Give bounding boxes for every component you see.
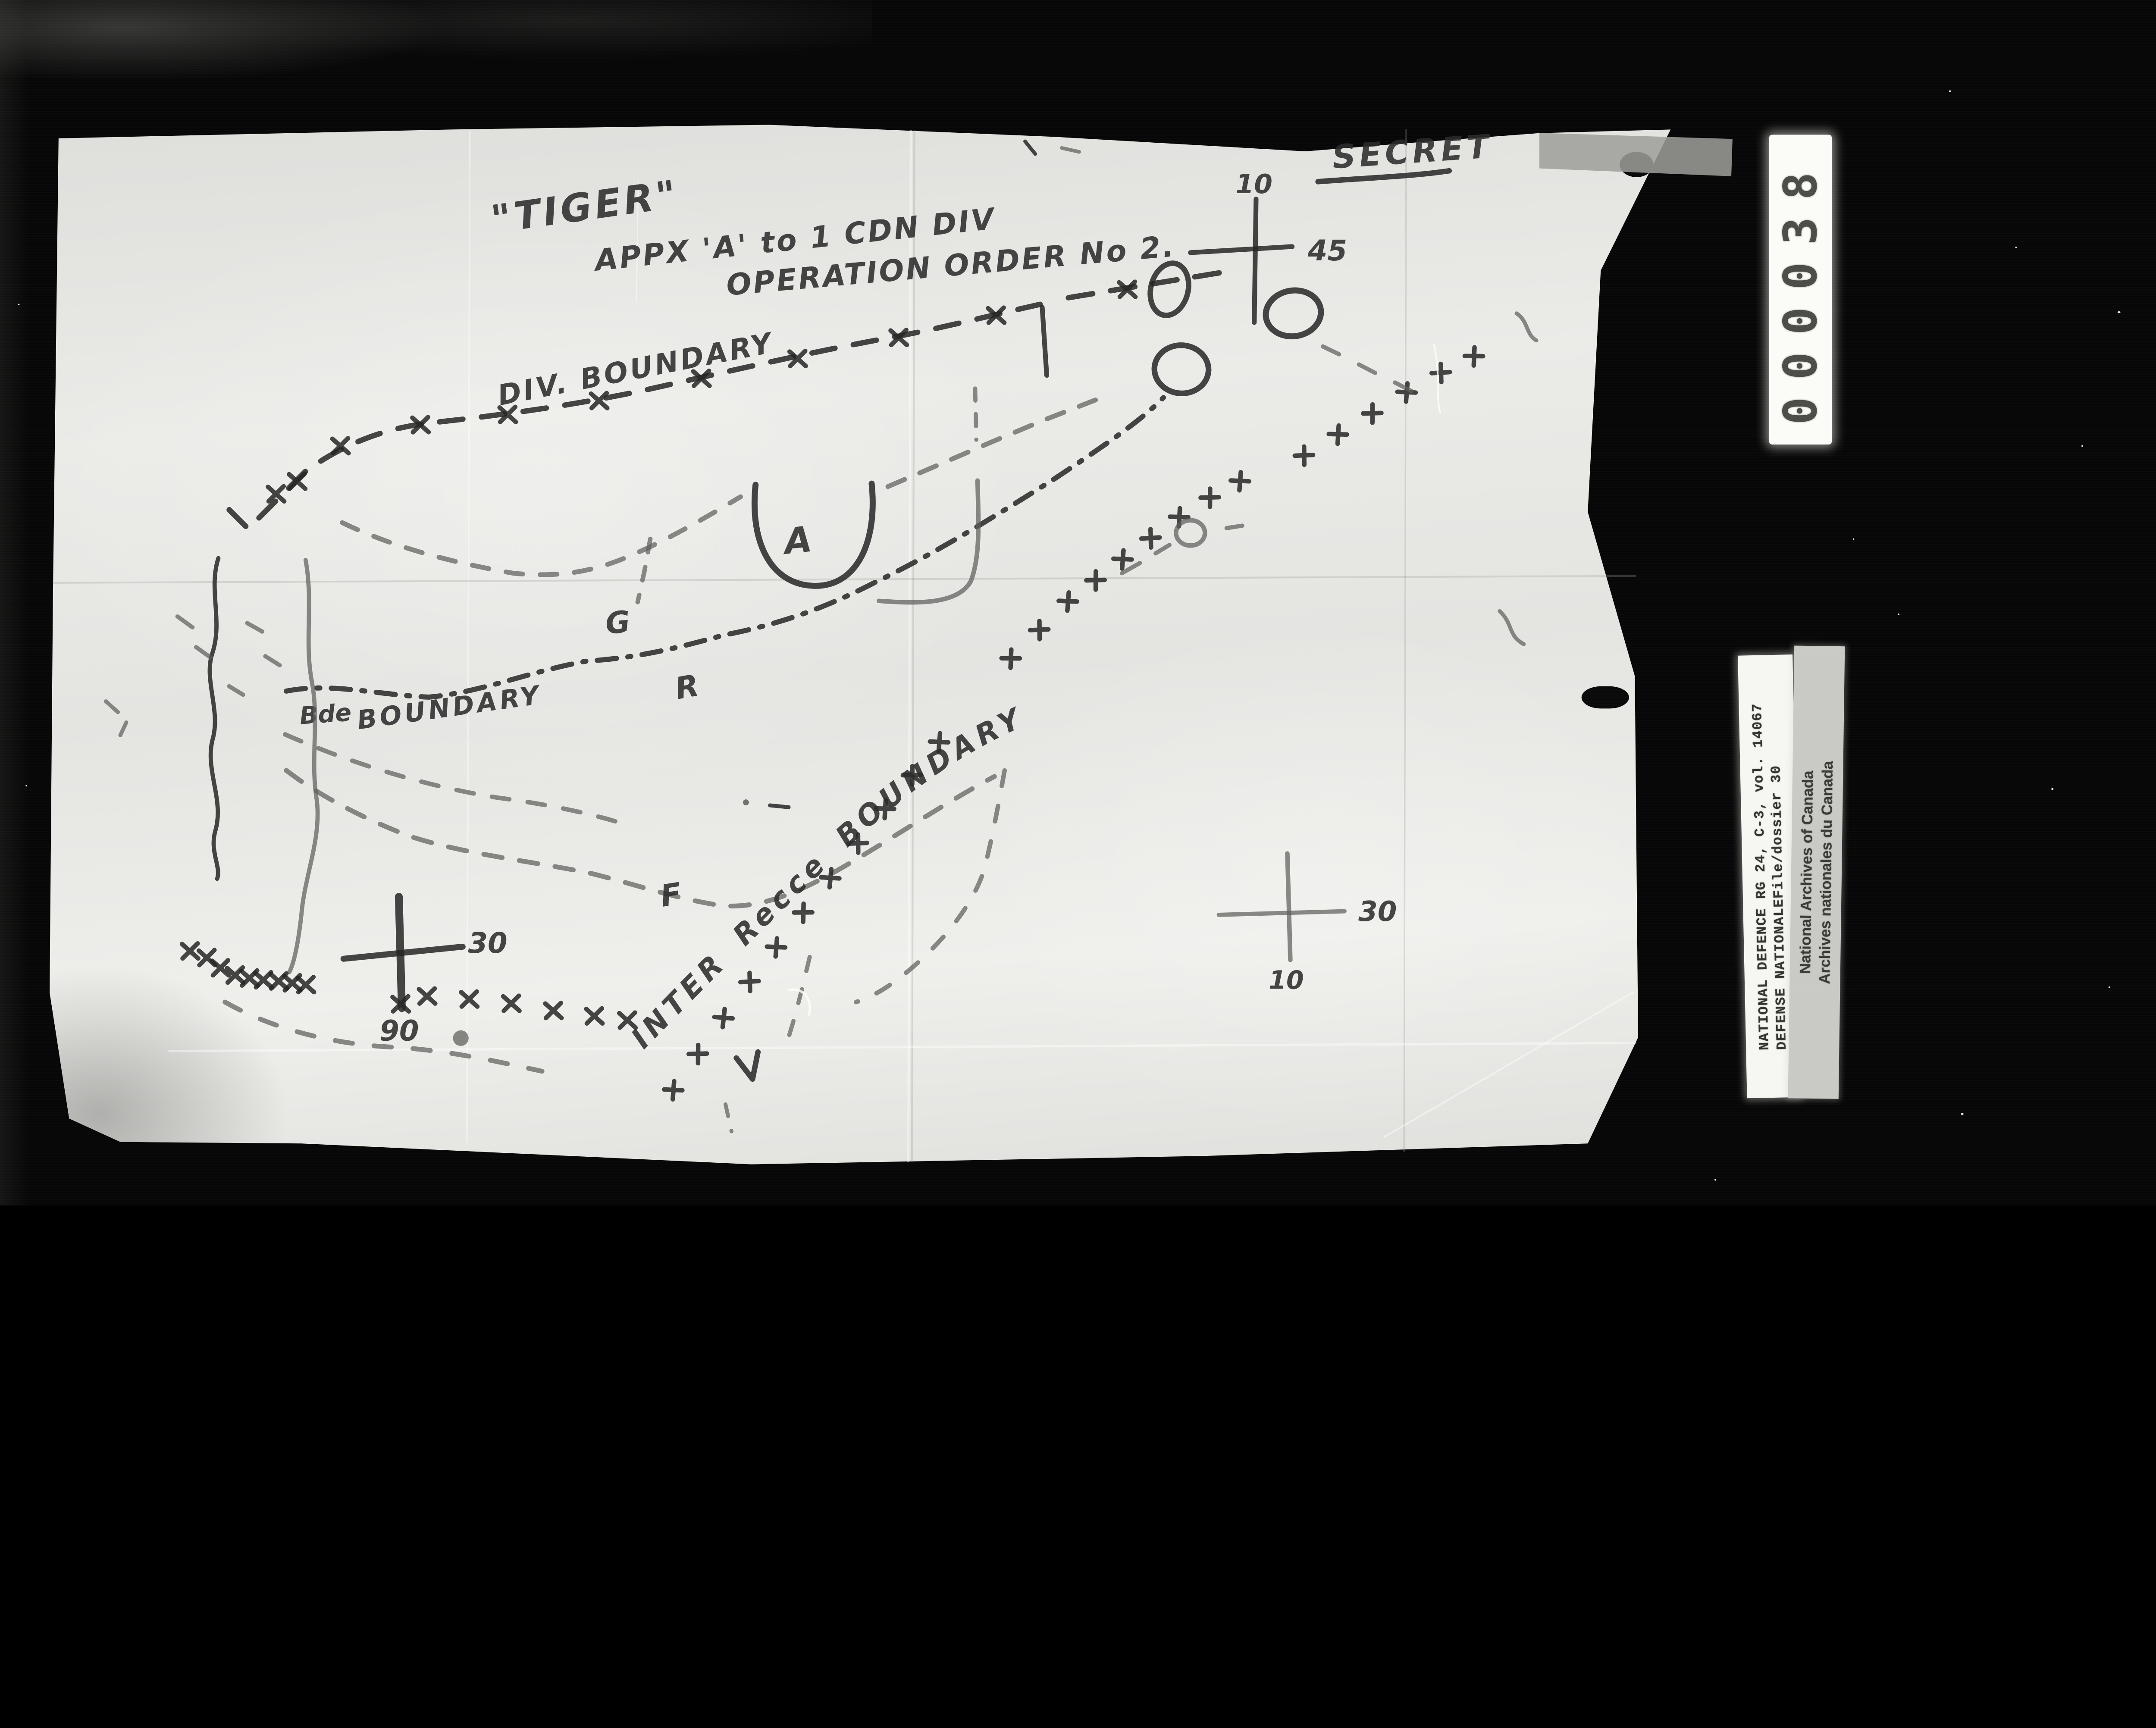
- archives-card: National Archives of Canada Archives nat…: [1788, 646, 1845, 1099]
- ref-line2: File/dossier 30: [1768, 765, 1786, 898]
- left-terrain: [106, 558, 318, 972]
- microfilm-frame: SECRET "TIGER" APPX 'A' to 1 CDN DIV OPE…: [0, 0, 2156, 1205]
- dust-speck: [1949, 90, 1951, 92]
- dust-speck: [2118, 311, 2121, 313]
- dust-speck: [2015, 247, 2017, 248]
- position-ovals: [1122, 259, 1324, 573]
- title-line1: "TIGER": [489, 172, 682, 242]
- grid-left-south: 90: [379, 1015, 419, 1048]
- dept-line1: NATIONAL DEFENCE: [1754, 908, 1772, 1050]
- archives-line1: National Archives of Canada: [1797, 770, 1817, 974]
- dept-label: NATIONAL DEFENCE DEFENSE NATIONALE: [1753, 898, 1791, 1050]
- dust-speck: [2051, 788, 2053, 790]
- frame-counter-digits: 000038: [1774, 155, 1827, 425]
- div-boundary-line: DIV. BOUNDARY: [229, 272, 1222, 529]
- bottom-x-row: [182, 943, 636, 1071]
- pencil-boundaries: G R F: [285, 400, 1095, 914]
- dust-speck: [2109, 986, 2110, 988]
- bde-label: Bde: [299, 698, 353, 730]
- bde-boundary-word: BOUNDARY: [355, 680, 544, 736]
- dust-speck: [1898, 614, 1899, 615]
- grid-cross-left: 30 90: [344, 897, 508, 1047]
- grid-top-east: 45: [1307, 235, 1347, 267]
- dust-speck: [1853, 538, 1854, 540]
- dust-speck: [25, 785, 27, 786]
- letter-g: G: [604, 604, 632, 642]
- dust-speck: [1714, 1179, 1716, 1180]
- dust-speck: [1961, 1113, 1964, 1115]
- secret-stamp: SECRET: [1318, 127, 1494, 182]
- bde-boundary-line: Bde BOUNDARY: [286, 398, 1163, 736]
- letter-r: R: [673, 668, 702, 706]
- grid-left-east: 30: [468, 927, 507, 960]
- grid-top-north: 10: [1236, 169, 1272, 200]
- grid-cross-right: 30 10: [1219, 854, 1397, 995]
- dept-line2: DEFENSE NATIONALE: [1771, 898, 1790, 1050]
- archives-line2: Archives nationales du Canada: [1816, 761, 1836, 984]
- secret-text: SECRET: [1331, 127, 1494, 176]
- ref-line1: RG 24, C-3, vol. 14067: [1749, 703, 1769, 899]
- frame-counter: 000038: [1769, 135, 1832, 445]
- grid-right-south: 10: [1269, 966, 1304, 995]
- letter-a: A: [780, 519, 814, 563]
- ref-label: RG 24, C-3, vol. 14067 File/dossier 30: [1749, 702, 1788, 899]
- letter-f: F: [658, 876, 684, 914]
- map-title: "TIGER" APPX 'A' to 1 CDN DIV OPERATION …: [489, 172, 1177, 303]
- recce-boundary: INTER Recce BOUNDARY: [624, 346, 1484, 1101]
- dust-speck: [2081, 445, 2083, 447]
- film-scratches: [789, 344, 1440, 1014]
- grid-right-east: 30: [1358, 895, 1397, 928]
- objective-a: A: [755, 484, 873, 586]
- dust-speck: [18, 304, 19, 305]
- adjacent-frame-sliver: [1539, 133, 1733, 176]
